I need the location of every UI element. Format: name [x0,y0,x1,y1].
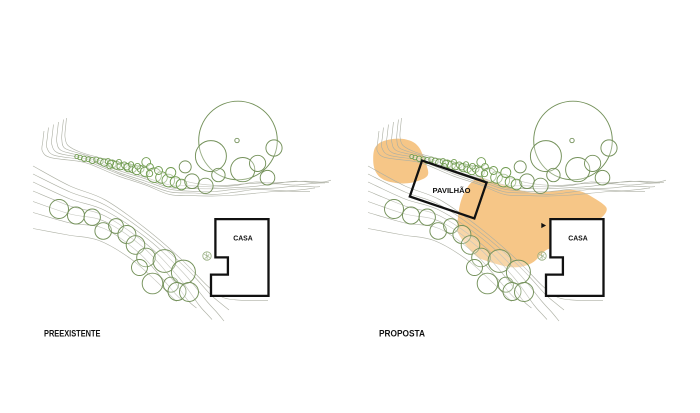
svg-text:PREEXISTENTE: PREEXISTENTE [44,329,101,340]
svg-text:PROPOSTA: PROPOSTA [379,329,425,340]
svg-text:PAVILHÃO: PAVILHÃO [433,186,472,195]
